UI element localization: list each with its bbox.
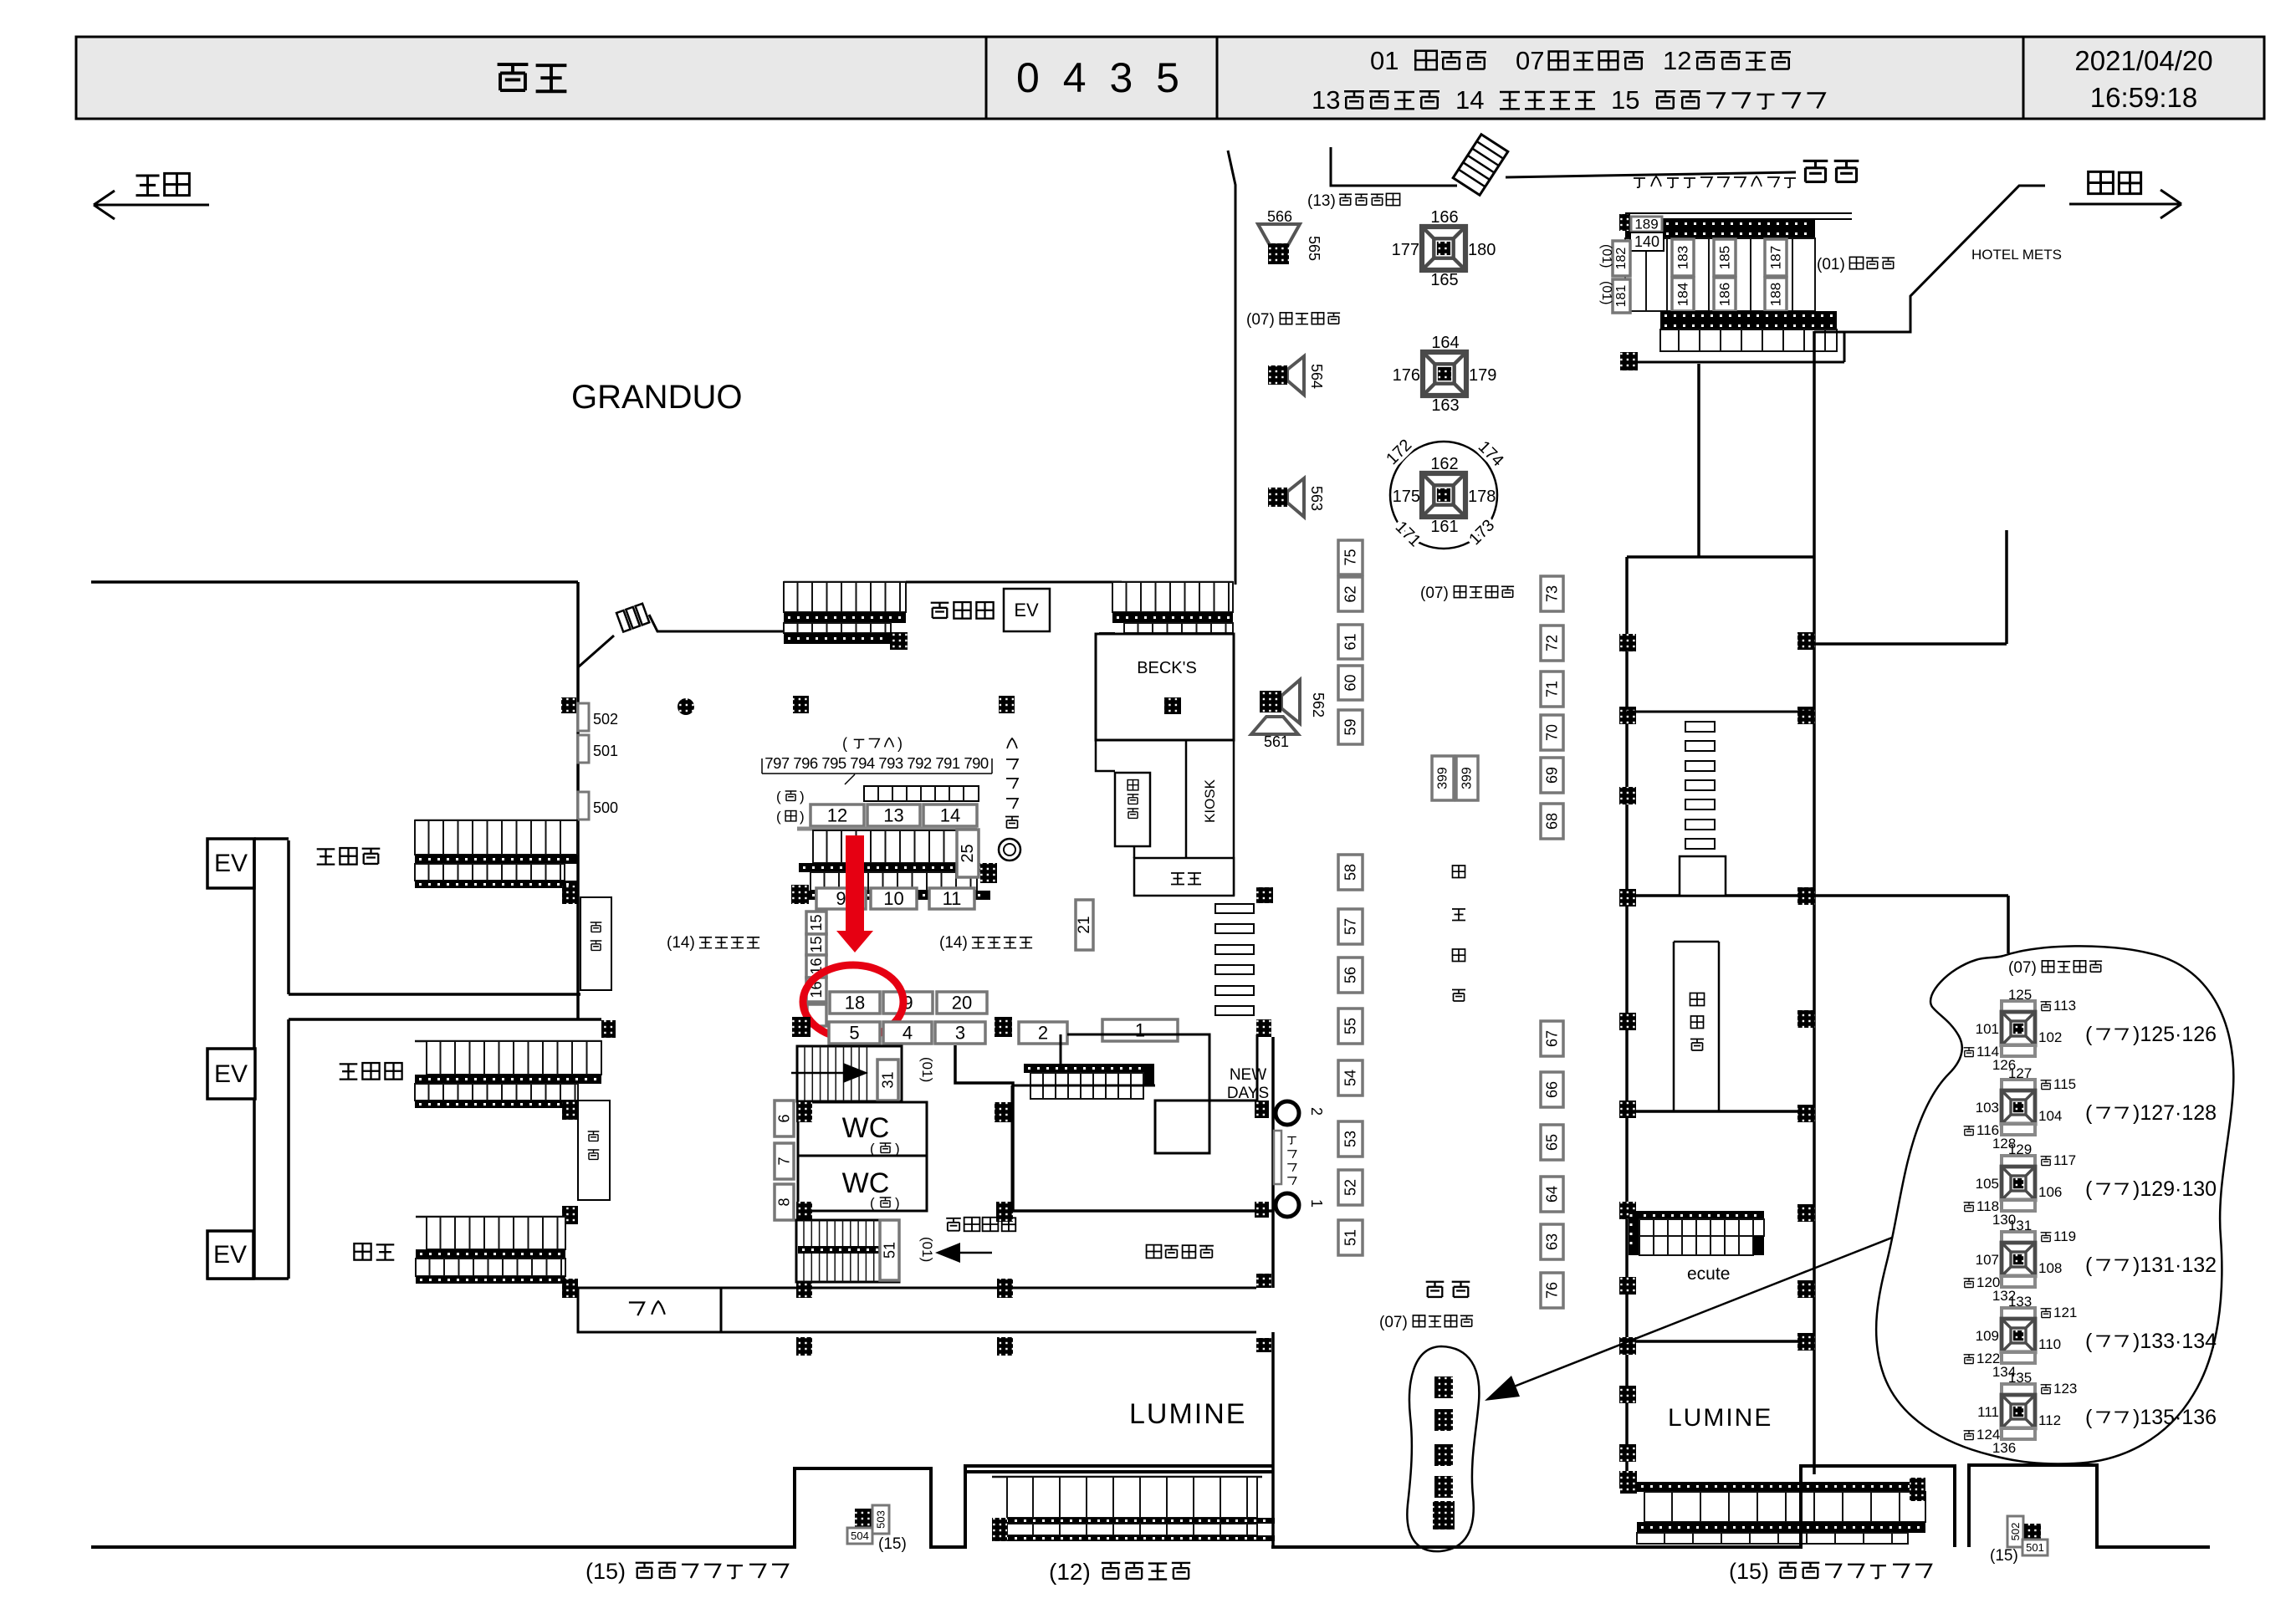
svg-text:177: 177 <box>1392 241 1419 259</box>
svg-text:71: 71 <box>1544 681 1561 697</box>
svg-text:51: 51 <box>882 1242 898 1259</box>
svg-text:187: 187 <box>1768 246 1784 269</box>
svg-text:67: 67 <box>1544 1030 1561 1047</box>
svg-text:399: 399 <box>1460 767 1475 789</box>
svg-text:(15): (15) <box>1729 1559 1769 1584</box>
svg-text:ecute: ecute <box>1687 1264 1730 1284</box>
svg-text:2: 2 <box>1308 1107 1325 1116</box>
svg-text:)131·132: )131·132 <box>2133 1254 2217 1277</box>
svg-text:): ) <box>897 735 903 752</box>
svg-text:109: 109 <box>1976 1328 1999 1344</box>
svg-text:HOTEL METS: HOTEL METS <box>1971 247 2062 263</box>
svg-text:60: 60 <box>1342 674 1359 691</box>
svg-text:2021/04/20: 2021/04/20 <box>2074 45 2212 76</box>
svg-text:(: ( <box>2085 1330 2093 1353</box>
svg-text:18: 18 <box>845 993 865 1014</box>
svg-text:64: 64 <box>1544 1186 1561 1203</box>
svg-text:136: 136 <box>1992 1440 2016 1456</box>
svg-text:(: ( <box>776 789 781 804</box>
svg-text:117: 117 <box>2053 1152 2076 1168</box>
svg-text:DAYS: DAYS <box>1227 1085 1269 1102</box>
svg-text:562: 562 <box>1310 692 1327 718</box>
svg-text:EV: EV <box>214 850 248 877</box>
svg-text:3: 3 <box>955 1023 965 1044</box>
svg-text:115: 115 <box>2053 1076 2076 1092</box>
svg-text:52: 52 <box>1342 1179 1359 1196</box>
svg-text:133: 133 <box>2008 1294 2032 1310</box>
svg-text:11: 11 <box>943 888 962 909</box>
svg-text:564: 564 <box>1308 364 1325 389</box>
svg-text:EV: EV <box>213 1241 247 1269</box>
svg-text:107: 107 <box>1976 1252 1999 1268</box>
svg-text:(15): (15) <box>1990 1547 2018 1565</box>
svg-text:(: ( <box>2085 1101 2093 1125</box>
svg-text:502: 502 <box>2009 1523 2022 1541</box>
svg-text:112: 112 <box>2038 1412 2061 1428</box>
svg-text:(01): (01) <box>1599 281 1613 304</box>
svg-text:188: 188 <box>1768 283 1784 306</box>
svg-text:129: 129 <box>2008 1141 2032 1157</box>
svg-text:75: 75 <box>1342 549 1359 565</box>
svg-text:62: 62 <box>1342 585 1359 602</box>
svg-text:16:59:18: 16:59:18 <box>2090 82 2197 113</box>
svg-text:): ) <box>800 809 805 825</box>
svg-text:178: 178 <box>1468 488 1496 506</box>
svg-text:8: 8 <box>776 1198 793 1206</box>
svg-text:31: 31 <box>880 1071 897 1088</box>
svg-text:121: 121 <box>2053 1305 2077 1320</box>
svg-text:(: ( <box>870 1141 875 1157</box>
svg-text:(14): (14) <box>667 934 695 952</box>
svg-text:131: 131 <box>2008 1218 2032 1233</box>
svg-text:WC: WC <box>842 1167 890 1199</box>
svg-text:503: 503 <box>875 1510 887 1529</box>
svg-text:70: 70 <box>1544 724 1561 741</box>
svg-text:111: 111 <box>1977 1404 1999 1420</box>
svg-text:(14): (14) <box>939 934 968 952</box>
svg-text:561: 561 <box>1264 733 1289 750</box>
svg-text:63: 63 <box>1544 1233 1561 1250</box>
svg-text:189: 189 <box>1634 217 1658 232</box>
svg-text:501: 501 <box>593 743 618 759</box>
svg-text:105: 105 <box>1976 1176 1999 1192</box>
svg-text:12: 12 <box>827 805 847 826</box>
svg-text:(01): (01) <box>919 1057 935 1082</box>
svg-text:BECK'S: BECK'S <box>1137 659 1197 677</box>
svg-text:(01): (01) <box>1599 244 1613 268</box>
svg-text:123: 123 <box>2053 1381 2077 1397</box>
svg-text:(01): (01) <box>1817 256 1845 273</box>
svg-text:(07): (07) <box>1420 585 1449 602</box>
svg-text:69: 69 <box>1544 767 1561 784</box>
svg-text:GRANDUO: GRANDUO <box>571 379 742 416</box>
svg-text:(15): (15) <box>586 1559 626 1584</box>
svg-text:104: 104 <box>2038 1108 2062 1124</box>
svg-text:07: 07 <box>1516 46 1544 75</box>
svg-text:125: 125 <box>2008 987 2032 1003</box>
svg-text:14: 14 <box>1455 85 1484 115</box>
svg-text:(: ( <box>2085 1406 2093 1429</box>
svg-text:68: 68 <box>1544 813 1561 830</box>
svg-text:162: 162 <box>1430 455 1458 473</box>
svg-text:106: 106 <box>2038 1184 2062 1200</box>
svg-text:164: 164 <box>1431 334 1459 352</box>
svg-text:502: 502 <box>593 711 618 728</box>
svg-text:0 4 3 5: 0 4 3 5 <box>1016 54 1185 101</box>
svg-text:EV: EV <box>1014 600 1039 620</box>
svg-text:119: 119 <box>2053 1228 2076 1244</box>
svg-text:LUMINE: LUMINE <box>1129 1398 1246 1430</box>
svg-text:LUMINE: LUMINE <box>1668 1404 1772 1432</box>
svg-text:165: 165 <box>1430 271 1458 289</box>
svg-text:175: 175 <box>1393 488 1420 506</box>
svg-text:56: 56 <box>1342 967 1359 983</box>
svg-text:76: 76 <box>1544 1282 1561 1299</box>
svg-text:4: 4 <box>903 1023 913 1044</box>
svg-text:(07): (07) <box>1246 311 1275 329</box>
svg-text:10: 10 <box>883 888 903 909</box>
svg-text:(: ( <box>776 809 781 825</box>
svg-text:501: 501 <box>2026 1541 2044 1554</box>
svg-text:(12): (12) <box>1049 1559 1091 1585</box>
svg-text:102: 102 <box>2038 1029 2062 1045</box>
svg-text:66: 66 <box>1544 1081 1561 1098</box>
svg-text:179: 179 <box>1469 366 1496 385</box>
svg-text:15: 15 <box>1611 85 1639 115</box>
svg-text:563: 563 <box>1308 486 1325 511</box>
svg-text:108: 108 <box>2038 1260 2062 1276</box>
svg-text:182: 182 <box>1614 248 1629 270</box>
svg-text:)133·134: )133·134 <box>2133 1330 2217 1353</box>
svg-text:140: 140 <box>1634 233 1659 250</box>
svg-text:54: 54 <box>1342 1070 1359 1086</box>
svg-text:(: ( <box>2085 1254 2093 1277</box>
svg-text:15: 15 <box>808 936 825 952</box>
svg-text:6: 6 <box>776 1114 793 1122</box>
svg-text:184: 184 <box>1675 283 1691 306</box>
svg-text:(: ( <box>2085 1177 2093 1201</box>
svg-text:110: 110 <box>2038 1336 2061 1352</box>
svg-text:183: 183 <box>1675 246 1691 269</box>
svg-text:KIOSK: KIOSK <box>1202 779 1218 823</box>
svg-text:103: 103 <box>1976 1100 1999 1116</box>
svg-text:73: 73 <box>1544 585 1561 602</box>
svg-text:13: 13 <box>883 805 903 826</box>
svg-text:399: 399 <box>1436 767 1450 789</box>
svg-text:181: 181 <box>1614 285 1629 308</box>
svg-text:186: 186 <box>1717 283 1733 306</box>
svg-text:53: 53 <box>1342 1131 1359 1147</box>
svg-text:9: 9 <box>836 888 846 909</box>
svg-text:20: 20 <box>952 993 972 1014</box>
svg-text:500: 500 <box>593 799 618 816</box>
svg-text:51: 51 <box>1342 1229 1359 1246</box>
svg-text:161: 161 <box>1430 518 1458 536</box>
svg-text:)135·136: )135·136 <box>2133 1406 2217 1429</box>
svg-text:797 796 795 794 793 792 791 79: 797 796 795 794 793 792 791 790 <box>764 754 989 772</box>
svg-text:): ) <box>800 789 805 804</box>
svg-text:25: 25 <box>959 844 977 862</box>
svg-text:13: 13 <box>1312 85 1340 115</box>
svg-text:185: 185 <box>1717 246 1733 269</box>
svg-text:166: 166 <box>1430 208 1458 227</box>
svg-text:(07): (07) <box>2008 959 2037 977</box>
svg-text:(15): (15) <box>878 1535 907 1553</box>
svg-text:57: 57 <box>1342 918 1359 935</box>
svg-text:): ) <box>895 1141 900 1157</box>
svg-text:WC: WC <box>842 1112 890 1144</box>
svg-text:EV: EV <box>214 1060 248 1088</box>
svg-text:65: 65 <box>1544 1134 1561 1151</box>
svg-text:58: 58 <box>1342 864 1359 881</box>
svg-text:504: 504 <box>851 1530 869 1542</box>
svg-text:72: 72 <box>1544 635 1561 651</box>
svg-text:(01): (01) <box>919 1237 935 1262</box>
svg-text:135: 135 <box>2008 1370 2032 1386</box>
svg-text:59: 59 <box>1342 718 1359 735</box>
svg-text:180: 180 <box>1468 241 1496 259</box>
svg-text:12: 12 <box>1663 46 1691 75</box>
svg-text:1: 1 <box>1308 1199 1325 1208</box>
svg-text:163: 163 <box>1431 396 1459 415</box>
svg-text:(07): (07) <box>1379 1314 1408 1331</box>
svg-text:(: ( <box>2085 1023 2093 1046</box>
svg-text:(: ( <box>842 735 847 752</box>
svg-text:5: 5 <box>849 1023 859 1044</box>
svg-text:21: 21 <box>1076 916 1093 933</box>
svg-text:55: 55 <box>1342 1018 1359 1034</box>
svg-text:NEW: NEW <box>1230 1066 1266 1084</box>
svg-text:127: 127 <box>2008 1065 2032 1081</box>
svg-text:101: 101 <box>1976 1021 1999 1037</box>
svg-text:565: 565 <box>1306 236 1322 261</box>
svg-text:7: 7 <box>776 1157 793 1165</box>
svg-text:176: 176 <box>1393 366 1420 385</box>
svg-text:2: 2 <box>1038 1023 1048 1044</box>
svg-text:01: 01 <box>1370 46 1399 75</box>
svg-text:61: 61 <box>1342 633 1359 650</box>
svg-text:(: ( <box>870 1195 875 1211</box>
svg-text:1: 1 <box>1135 1020 1145 1041</box>
svg-text:15: 15 <box>808 914 825 931</box>
svg-text:(13): (13) <box>1307 192 1336 210</box>
svg-text:)127·128: )127·128 <box>2133 1101 2217 1125</box>
svg-text:)129·130: )129·130 <box>2133 1177 2217 1201</box>
svg-text:14: 14 <box>940 805 960 826</box>
svg-text:)125·126: )125·126 <box>2133 1023 2217 1046</box>
svg-text:): ) <box>895 1195 900 1211</box>
svg-text:113: 113 <box>2053 998 2076 1014</box>
